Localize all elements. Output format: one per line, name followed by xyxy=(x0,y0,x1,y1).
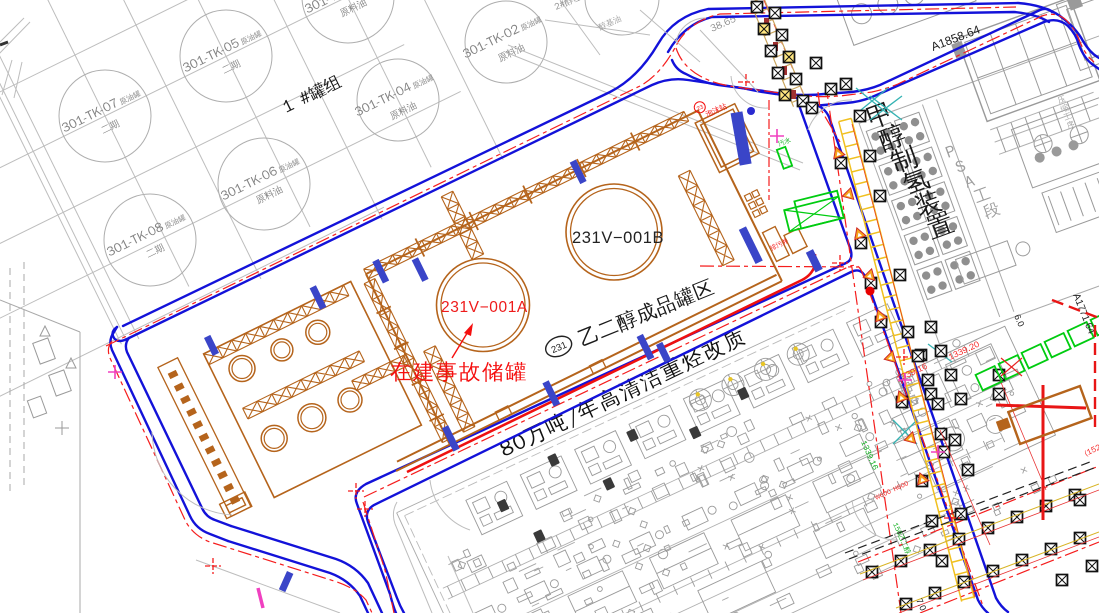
svg-text:231V−001B: 231V−001B xyxy=(572,229,664,247)
svg-text:231V−001A: 231V−001A xyxy=(441,299,528,316)
